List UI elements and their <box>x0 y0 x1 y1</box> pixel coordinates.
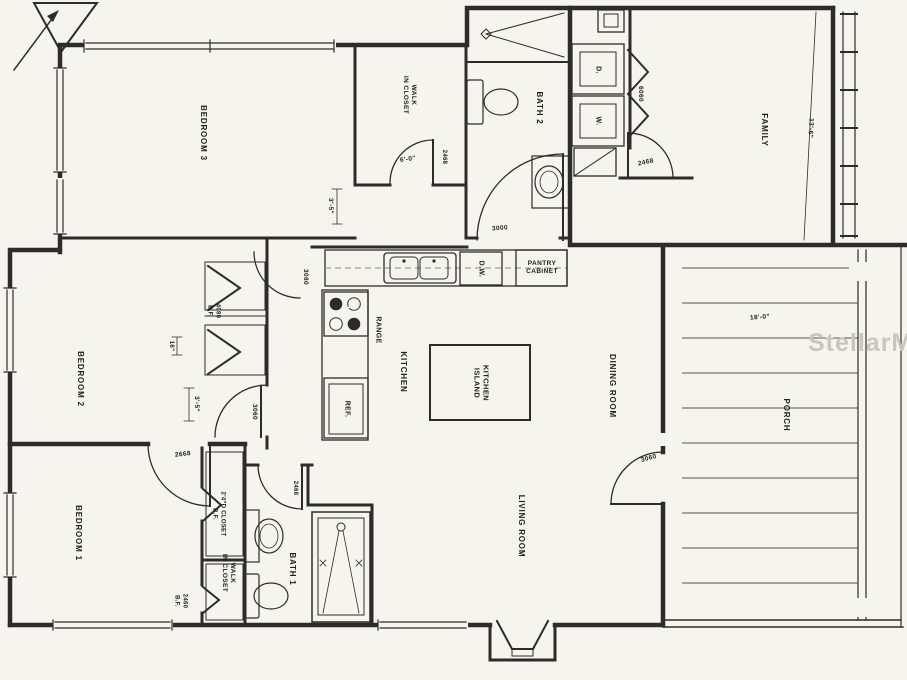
north-arrow-icon <box>14 3 97 70</box>
room-label-family: FAMILY <box>759 113 769 146</box>
room-label-bedroom3: BEDROOM 3 <box>198 105 208 161</box>
porch-deck <box>659 247 903 627</box>
front-entry <box>497 621 548 656</box>
label-kitchen-island: KITCHEN ISLAND <box>472 365 491 401</box>
room-label-porch: PORCH <box>781 399 791 432</box>
door-label-laundry-bifold: 6060 <box>636 86 644 102</box>
door-label-hall-opening: 3000 <box>492 224 509 233</box>
door-label-wic-top: 2468 <box>439 150 447 165</box>
dim-family-width: 13'-6" <box>805 118 814 138</box>
dim-bedroom2-wall: 3'-5" <box>192 396 200 412</box>
kitchen-fixtures <box>322 250 567 440</box>
label-dishwasher: D.W. <box>476 261 485 278</box>
room-label-kitchen: KITCHEN <box>398 351 408 392</box>
label-microwave: M/W <box>341 306 349 319</box>
room-label-living: LIVING ROOM <box>516 495 526 558</box>
room-label-walk-in-closet-bottom: WALK IN CLOSET <box>220 554 236 592</box>
label-closet-b1: 2'4"D CLOSET B.F. <box>211 492 226 537</box>
door-label-kitchen-opening: 3080 <box>301 269 309 285</box>
dim-closet-depth: 16" <box>166 341 174 351</box>
room-label-bath1: BATH 1 <box>287 552 297 585</box>
dim-hall-closet: 3'-5" <box>326 198 334 214</box>
bath1-fixtures <box>245 510 370 622</box>
door-label-bath1: 2468 <box>290 481 298 496</box>
windows <box>4 12 857 630</box>
floor-plan-linework <box>0 0 907 680</box>
label-fridge: REF. <box>342 401 351 418</box>
door-swings <box>148 133 673 509</box>
room-label-bedroom2: BEDROOM 2 <box>75 351 85 407</box>
room-label-bedroom1: BEDROOM 1 <box>73 505 83 561</box>
label-range: RANGE <box>373 316 382 343</box>
room-label-bath2: BATH 2 <box>534 91 544 124</box>
label-pantry-cabinet: PANTRY CABINET <box>526 260 558 276</box>
dim-porch-width: 18'-0" <box>750 313 771 323</box>
stellar-mls-watermark: StellarMLS <box>808 329 907 358</box>
door-label-bedroom2: 3060 <box>250 404 258 420</box>
room-label-walk-in-closet-top: WALK IN CLOSET <box>401 76 417 114</box>
label-dryer: D. <box>593 66 602 74</box>
label-washer: W. <box>593 117 602 126</box>
interior-walls <box>10 8 692 625</box>
door-label-b2-closet-bifold: 4080 B.F. <box>206 304 221 319</box>
closet-fittings <box>203 50 648 620</box>
room-label-dining: DINING ROOM <box>607 354 617 418</box>
floor-plan: BEDROOM 3 BEDROOM 2 BEDROOM 1 FAMILY KIT… <box>0 0 907 680</box>
dimension-lines <box>172 12 816 421</box>
door-label-b1-wic-bifold: 2460 B.F. <box>173 594 188 609</box>
exterior-walls <box>10 8 905 660</box>
bath2-laundry-fixtures <box>466 10 624 208</box>
door-label-bedroom1: 2668 <box>175 450 192 460</box>
